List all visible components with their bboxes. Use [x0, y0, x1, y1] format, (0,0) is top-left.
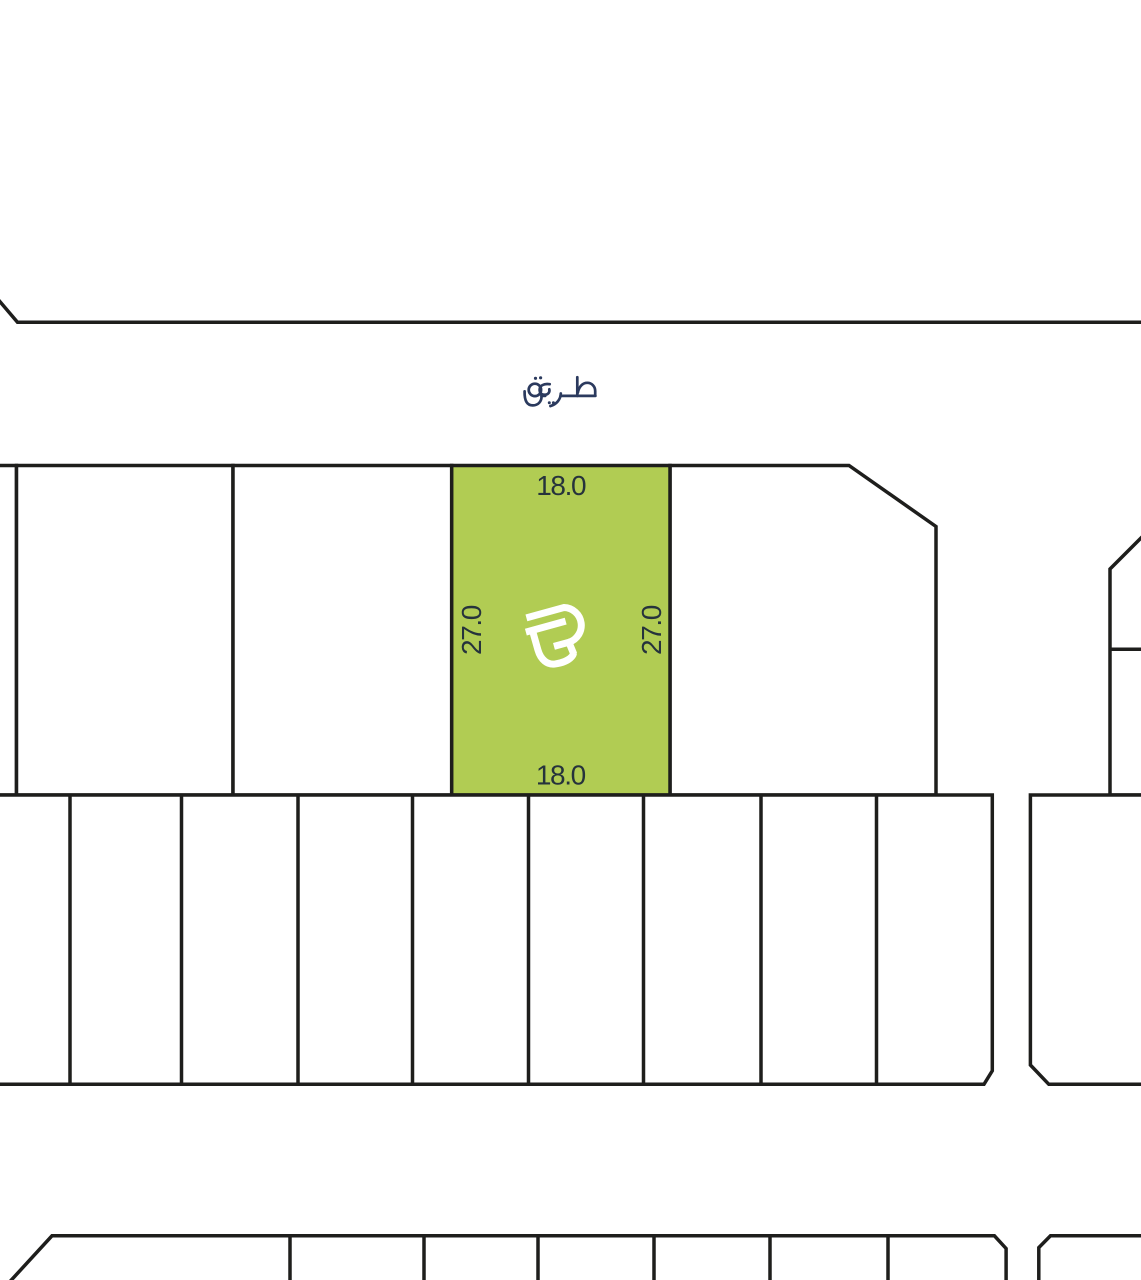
- svg-text:18.0: 18.0: [536, 470, 586, 501]
- svg-text:27.0: 27.0: [636, 605, 667, 655]
- svg-text:18.0: 18.0: [536, 760, 586, 791]
- svg-text:27.0: 27.0: [456, 605, 487, 655]
